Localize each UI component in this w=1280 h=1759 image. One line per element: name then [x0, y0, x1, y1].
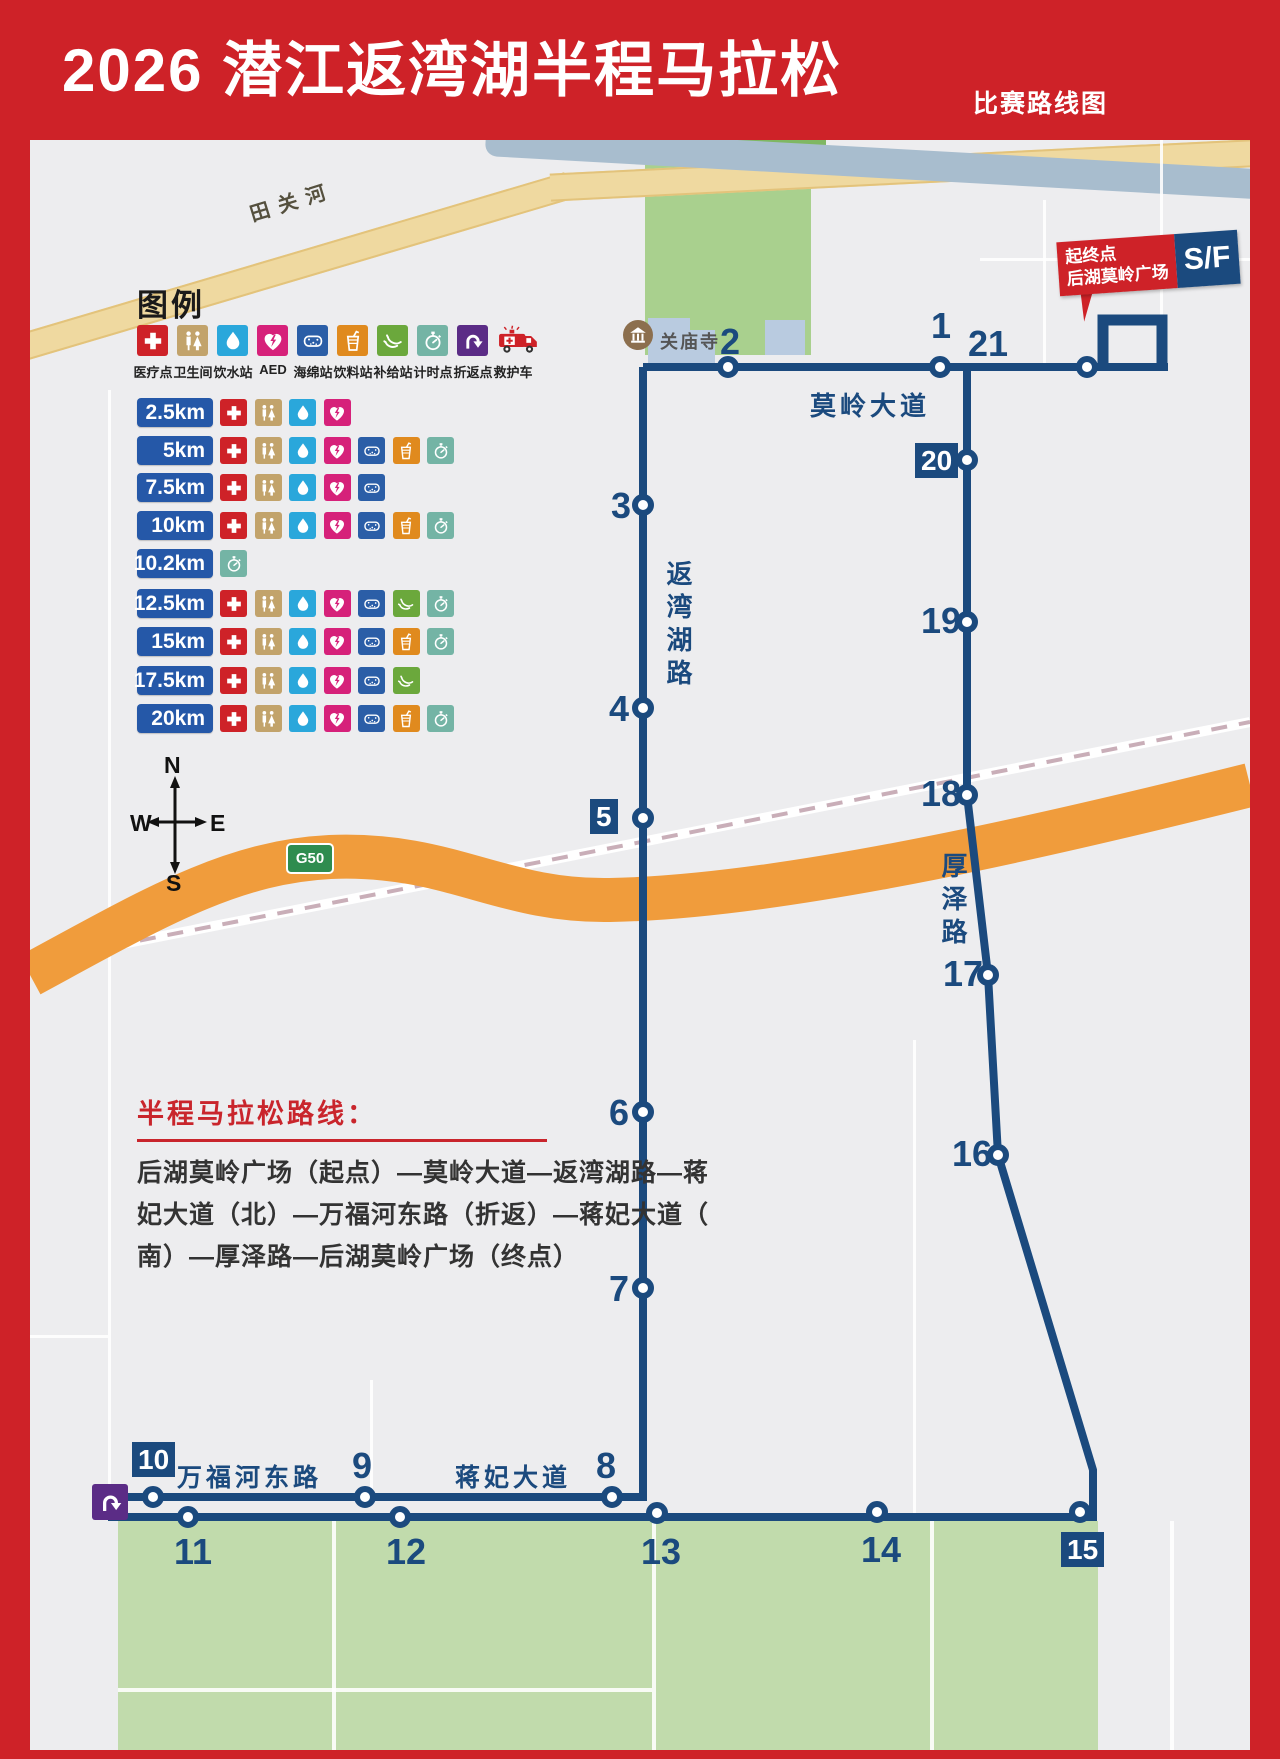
route-point-20 — [959, 452, 975, 468]
route-point-16 — [990, 1147, 1006, 1163]
toilet-icon — [255, 667, 282, 694]
callout-text: 起终点 后湖莫岭广场 — [1056, 234, 1177, 296]
route-point-18 — [959, 787, 975, 803]
medical-icon — [220, 590, 247, 617]
km-marker-2: 2 — [720, 324, 740, 360]
sponge-icon — [358, 705, 385, 732]
compass: N S W E — [130, 752, 230, 892]
medical-icon — [137, 325, 168, 356]
sf-badge: S/F — [1174, 230, 1240, 288]
km-row-badge: 7.5km — [137, 473, 213, 502]
km-marker-19: 19 — [921, 603, 961, 639]
toilet-icon — [255, 399, 282, 426]
km-row-badge: 15km — [137, 627, 213, 656]
timer-icon — [417, 325, 448, 356]
aed-icon — [324, 512, 351, 539]
km-marker-18: 18 — [921, 776, 961, 812]
banana-icon — [393, 667, 420, 694]
km-marker-10: 10 — [132, 1442, 175, 1477]
timer-icon — [427, 628, 454, 655]
banana-icon — [393, 590, 420, 617]
ambulance-icon — [497, 325, 541, 356]
timer-icon — [427, 437, 454, 464]
medical-icon — [220, 667, 247, 694]
medical-icon — [220, 399, 247, 426]
water-icon — [289, 628, 316, 655]
route-description-title: 半程马拉松路线： — [137, 1092, 575, 1131]
sponge-icon — [358, 590, 385, 617]
km-marker-5: 5 — [590, 799, 618, 834]
km-marker-13: 13 — [641, 1534, 681, 1570]
sponge-icon — [358, 667, 385, 694]
road-label-fanwanhu: 返湾湖路 — [660, 560, 697, 692]
toilet-icon — [255, 474, 282, 501]
uturn-icon — [457, 325, 488, 356]
km-row-badge: 10.2km — [137, 549, 213, 578]
road-label-moling: 莫岭大道 — [810, 386, 930, 423]
race-route-poster: { "header": {"title": "2026 潜江返湾湖半程马拉松",… — [0, 0, 1280, 1759]
route-point-7 — [635, 1280, 651, 1296]
aed-icon — [324, 705, 351, 732]
route-description-line: 后湖莫岭广场（起点）—莫岭大道—返湾湖路—蒋 — [137, 1152, 575, 1194]
drink-icon — [393, 512, 420, 539]
sponge-icon — [358, 437, 385, 464]
temple-icon — [623, 320, 653, 350]
water-icon — [289, 590, 316, 617]
route-point-12 — [392, 1509, 408, 1525]
km-row-badge: 20km — [137, 704, 213, 733]
km-marker-12: 12 — [386, 1534, 426, 1570]
km-marker-6: 6 — [609, 1095, 629, 1131]
legend-title: 图例 — [137, 280, 205, 325]
medical-icon — [220, 474, 247, 501]
route-point-13 — [649, 1505, 665, 1521]
water-icon — [289, 512, 316, 539]
timer-icon — [427, 512, 454, 539]
aed-icon — [324, 590, 351, 617]
route-point — [1079, 359, 1095, 375]
page-title: 2026 潜江返湾湖半程马拉松 — [62, 22, 842, 109]
drink-icon — [393, 705, 420, 732]
compass-north: N — [164, 752, 181, 779]
route-description-line: 南）—厚泽路—后湖莫岭广场（终点） — [137, 1236, 575, 1278]
banana-icon — [377, 325, 408, 356]
km-row-badge: 12.5km — [137, 589, 213, 618]
road-label-houze: 厚泽路 — [935, 852, 972, 951]
aed-icon — [324, 474, 351, 501]
km-marker-4: 4 — [609, 691, 629, 727]
legend-label: 救护车 — [482, 362, 544, 381]
route-point-19 — [959, 614, 975, 630]
route-point-5 — [635, 810, 651, 826]
g50-highway-badge: G50 — [286, 843, 334, 874]
water-icon — [217, 325, 248, 356]
start-finish-plaza — [1103, 320, 1162, 367]
divider — [137, 1139, 547, 1142]
water-icon — [289, 437, 316, 464]
sponge-icon — [358, 512, 385, 539]
aed-icon — [324, 437, 351, 464]
sponge-icon — [358, 628, 385, 655]
km-row-badge: 17.5km — [137, 666, 213, 695]
water-icon — [289, 474, 316, 501]
compass-south: S — [166, 870, 181, 897]
km-marker-15: 15 — [1061, 1532, 1104, 1567]
temple-label: 关庙寺 — [660, 328, 720, 354]
km-marker-8: 8 — [596, 1448, 616, 1484]
road-label-jiangfei: 蒋妃大道 — [455, 1458, 571, 1494]
route-point-3 — [635, 497, 651, 513]
km-marker-9: 9 — [352, 1448, 372, 1484]
route-point-1 — [932, 359, 948, 375]
route-point-10 — [145, 1489, 161, 1505]
route-layer — [30, 140, 1250, 1750]
aed-icon — [324, 628, 351, 655]
sponge-icon — [358, 474, 385, 501]
uturn-icon — [92, 1484, 128, 1520]
km-marker-17: 17 — [943, 956, 983, 992]
km-marker-11: 11 — [174, 1534, 212, 1570]
water-icon — [289, 667, 316, 694]
route-point-9 — [357, 1489, 373, 1505]
route-map: 图例 N S W E 田关河 关庙寺 G50 莫岭大道 返湾湖路 厚泽路 万福河… — [30, 140, 1250, 1750]
toilet-icon — [255, 512, 282, 539]
km-row-badge: 10km — [137, 511, 213, 540]
timer-icon — [220, 550, 247, 577]
km-row-badge: 5km — [137, 436, 213, 465]
medical-icon — [220, 705, 247, 732]
toilet-icon — [255, 705, 282, 732]
sponge-icon — [297, 325, 328, 356]
drink-icon — [393, 628, 420, 655]
timer-icon — [427, 590, 454, 617]
route-point-4 — [635, 700, 651, 716]
medical-icon — [220, 512, 247, 539]
km-row-badge: 2.5km — [137, 398, 213, 427]
timer-icon — [427, 705, 454, 732]
km-marker-14: 14 — [861, 1532, 901, 1568]
km-marker-1: 1 — [931, 308, 951, 344]
route-description-line: 妃大道（北）—万福河东路（折返）—蒋妃大道（ — [137, 1194, 575, 1236]
water-icon — [289, 705, 316, 732]
aed-icon — [324, 667, 351, 694]
toilet-icon — [255, 437, 282, 464]
medical-icon — [220, 437, 247, 464]
route-point-8 — [604, 1489, 620, 1505]
route-description: 半程马拉松路线： 后湖莫岭广场（起点）—莫岭大道—返湾湖路—蒋 妃大道（北）—万… — [137, 1092, 575, 1278]
km-marker-21: 21 — [968, 326, 1008, 362]
route-point-15 — [1072, 1504, 1088, 1520]
toilet-icon — [177, 325, 208, 356]
drink-icon — [393, 437, 420, 464]
toilet-icon — [255, 628, 282, 655]
medical-icon — [220, 628, 247, 655]
km-marker-16: 16 — [952, 1136, 992, 1172]
compass-east: E — [210, 810, 225, 837]
header: 2026 潜江返湾湖半程马拉松 比赛路线图 — [0, 0, 1280, 140]
road-label-wanfuhe: 万福河东路 — [177, 1458, 322, 1494]
aed-icon — [257, 325, 288, 356]
km-marker-3: 3 — [611, 488, 631, 524]
toilet-icon — [255, 590, 282, 617]
page-subtitle: 比赛路线图 — [973, 84, 1108, 120]
km-marker-20: 20 — [915, 443, 958, 478]
route-point-14 — [869, 1504, 885, 1520]
drink-icon — [337, 325, 368, 356]
water-icon — [289, 399, 316, 426]
km-marker-7: 7 — [609, 1271, 629, 1307]
aed-icon — [324, 399, 351, 426]
route-point-6 — [635, 1104, 651, 1120]
compass-west: W — [130, 810, 152, 837]
route-point-11 — [180, 1509, 196, 1525]
